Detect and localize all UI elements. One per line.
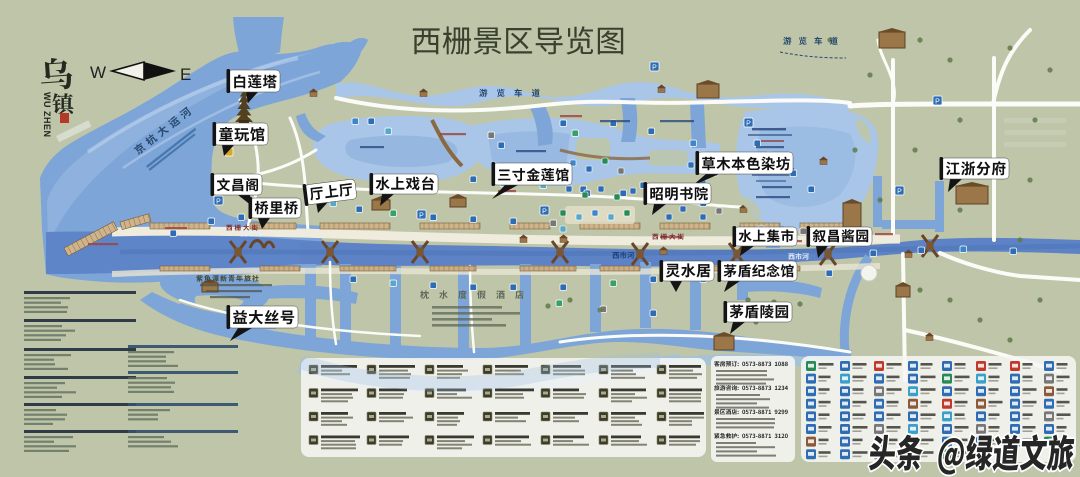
svg-text:P: P [542,208,547,215]
svg-text:P: P [897,188,902,195]
svg-text:P: P [935,98,940,105]
svg-text:P: P [216,198,221,205]
svg-text:W: W [90,63,106,82]
svg-text:WU ZHEN: WU ZHEN [42,92,52,138]
svg-text:P: P [746,120,751,127]
svg-text:P: P [652,64,657,71]
svg-text:P: P [419,212,424,219]
svg-text:E: E [180,65,191,84]
